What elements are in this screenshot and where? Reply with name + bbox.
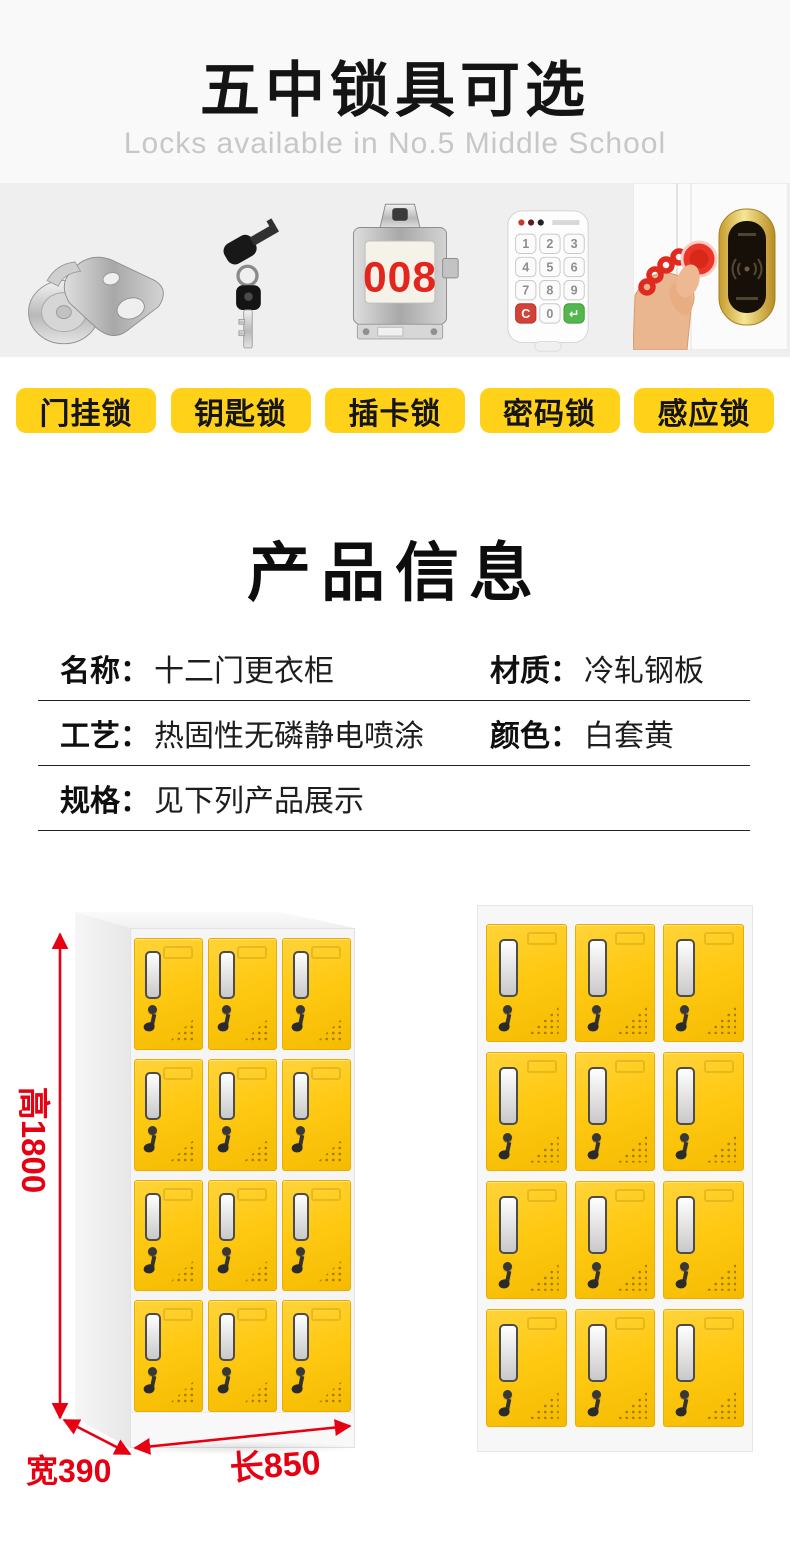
vent-holes bbox=[317, 1259, 343, 1283]
locker-door bbox=[486, 1052, 567, 1170]
name-card-slot bbox=[588, 1067, 607, 1125]
door-handle-emboss bbox=[163, 1067, 193, 1080]
keyhole-icon bbox=[680, 1390, 689, 1399]
name-card-slot bbox=[499, 939, 518, 997]
keyhole-icon bbox=[296, 1126, 305, 1135]
vent-holes bbox=[169, 1380, 195, 1404]
spec-value: 见下列产品展示 bbox=[154, 776, 364, 820]
hanging-keys-icon bbox=[505, 1399, 511, 1412]
name-card-slot bbox=[676, 1067, 695, 1125]
locker-door bbox=[208, 938, 277, 1050]
door-handle-emboss bbox=[527, 932, 557, 945]
spec-value: 十二门更衣柜 bbox=[154, 646, 334, 690]
locker-door bbox=[663, 1181, 744, 1299]
vent-holes bbox=[706, 1135, 736, 1163]
name-card-slot bbox=[588, 1196, 607, 1254]
keyhole-icon bbox=[592, 1262, 601, 1271]
hanging-keys-icon bbox=[593, 1270, 599, 1283]
vent-holes bbox=[317, 1380, 343, 1404]
vent-holes bbox=[706, 1006, 736, 1034]
name-card-slot bbox=[676, 1324, 695, 1382]
spec-table: 名称： 十二门更衣柜 材质： 冷轧钢板 工艺： 热固性无磷静电喷涂 颜色： 白套… bbox=[38, 636, 750, 831]
cam-lock-photo bbox=[12, 223, 177, 353]
svg-text:↵: ↵ bbox=[569, 307, 580, 321]
locker-door bbox=[575, 1181, 656, 1299]
locker-front-face bbox=[130, 928, 355, 1448]
locker-door bbox=[134, 1300, 203, 1412]
hanging-keys-icon bbox=[150, 1376, 156, 1389]
locker-door bbox=[282, 938, 351, 1050]
name-card-slot bbox=[588, 1324, 607, 1382]
hanging-keys-icon bbox=[224, 1014, 230, 1027]
door-grid bbox=[134, 938, 351, 1412]
locker-door bbox=[663, 924, 744, 1042]
vent-holes bbox=[529, 1263, 559, 1291]
lock-type-button-card[interactable]: 插卡锁 bbox=[325, 388, 465, 433]
name-card-slot bbox=[293, 1313, 309, 1361]
door-handle-emboss bbox=[237, 1308, 267, 1321]
vent-holes bbox=[617, 1006, 647, 1034]
vent-holes bbox=[617, 1391, 647, 1419]
door-handle-emboss bbox=[704, 932, 734, 945]
spec-material: 材质： 冷轧钢板 bbox=[490, 646, 750, 690]
svg-text:7: 7 bbox=[522, 284, 529, 298]
door-handle-emboss bbox=[527, 1317, 557, 1330]
keyhole-icon bbox=[296, 1247, 305, 1256]
locker-door bbox=[575, 924, 656, 1042]
vent-holes bbox=[617, 1263, 647, 1291]
keyhole-icon bbox=[592, 1005, 601, 1014]
spec-row-2: 工艺： 热固性无磷静电喷涂 颜色： 白套黄 bbox=[38, 701, 750, 766]
svg-text:4: 4 bbox=[522, 260, 529, 274]
rfid-lock-photo bbox=[633, 183, 788, 350]
locker-door bbox=[282, 1180, 351, 1292]
page-root: { "colors": { "accent_yellow": "#ffd118"… bbox=[0, 0, 790, 1567]
vent-holes bbox=[243, 1139, 269, 1163]
name-card-slot bbox=[499, 1196, 518, 1254]
hanging-keys-icon bbox=[150, 1255, 156, 1268]
door-grid bbox=[486, 924, 744, 1427]
vent-holes bbox=[243, 1018, 269, 1042]
card-number-text: 008 bbox=[363, 253, 437, 301]
keyhole-icon bbox=[148, 1126, 157, 1135]
svg-text:3: 3 bbox=[571, 237, 578, 251]
door-handle-emboss bbox=[311, 1308, 341, 1321]
vent-holes bbox=[706, 1263, 736, 1291]
hanging-keys-icon bbox=[150, 1014, 156, 1027]
hanging-keys-icon bbox=[224, 1255, 230, 1268]
keypad-lock-icon: 1 2 3 4 5 6 7 8 9 0 C ↵ bbox=[502, 208, 594, 355]
name-card-slot bbox=[499, 1067, 518, 1125]
locker-door bbox=[282, 1059, 351, 1171]
vent-holes bbox=[169, 1018, 195, 1042]
door-handle-emboss bbox=[163, 1308, 193, 1321]
keyhole-icon bbox=[222, 1247, 231, 1256]
door-handle-emboss bbox=[237, 946, 267, 959]
spec-value: 热固性无磷静电喷涂 bbox=[154, 711, 424, 755]
name-card-slot bbox=[219, 1313, 235, 1361]
hanging-keys-icon bbox=[298, 1255, 304, 1268]
door-handle-emboss bbox=[527, 1189, 557, 1202]
hanging-keys-icon bbox=[150, 1135, 156, 1148]
spec-color: 颜色： 白套黄 bbox=[490, 711, 750, 755]
name-card-slot bbox=[588, 939, 607, 997]
locker-door bbox=[663, 1309, 744, 1427]
door-handle-emboss bbox=[163, 1188, 193, 1201]
keyhole-icon bbox=[222, 1126, 231, 1135]
name-card-slot bbox=[676, 939, 695, 997]
svg-text:2: 2 bbox=[546, 237, 553, 251]
page-title: 五中锁具可选 bbox=[0, 42, 790, 129]
name-card-slot bbox=[145, 1072, 161, 1120]
locker-door bbox=[208, 1180, 277, 1292]
rfid-lock-icon bbox=[633, 183, 788, 350]
width-label: 宽390 bbox=[26, 1446, 111, 1492]
locker-door bbox=[663, 1052, 744, 1170]
lock-type-button-door-hanging[interactable]: 门挂锁 bbox=[16, 388, 156, 433]
page-subtitle: Locks available in No.5 Middle School bbox=[0, 127, 790, 161]
locker-door bbox=[134, 938, 203, 1050]
keyhole-icon bbox=[680, 1262, 689, 1271]
hanging-keys-icon bbox=[505, 1142, 511, 1155]
vent-holes bbox=[317, 1018, 343, 1042]
spec-value: 冷轧钢板 bbox=[584, 646, 704, 690]
keypad-lock-photo: 1 2 3 4 5 6 7 8 9 0 C ↵ bbox=[502, 208, 594, 355]
lock-photos-strip: 008 1 2 3 4 bbox=[0, 183, 790, 357]
door-handle-emboss bbox=[163, 946, 193, 959]
spec-craft: 工艺： 热固性无磷静电喷涂 bbox=[38, 711, 490, 755]
svg-text:8: 8 bbox=[546, 284, 553, 298]
locker-door bbox=[208, 1059, 277, 1171]
vent-holes bbox=[243, 1380, 269, 1404]
vent-holes bbox=[529, 1135, 559, 1163]
vent-holes bbox=[243, 1259, 269, 1283]
name-card-slot bbox=[499, 1324, 518, 1382]
svg-text:6: 6 bbox=[571, 260, 578, 274]
hanging-keys-icon bbox=[593, 1142, 599, 1155]
name-card-slot bbox=[676, 1196, 695, 1254]
vent-holes bbox=[706, 1391, 736, 1419]
vent-holes bbox=[529, 1006, 559, 1034]
lock-type-button-key[interactable]: 钥匙锁 bbox=[171, 388, 311, 433]
keyhole-icon bbox=[296, 1005, 305, 1014]
keyhole-icon bbox=[148, 1247, 157, 1256]
hanging-keys-icon bbox=[682, 1014, 688, 1027]
product-info-title: 产品信息 bbox=[0, 522, 790, 614]
locker-door bbox=[208, 1300, 277, 1412]
svg-text:9: 9 bbox=[571, 284, 578, 298]
spec-value: 白套黄 bbox=[584, 711, 674, 755]
vent-holes bbox=[169, 1259, 195, 1283]
door-handle-emboss bbox=[704, 1317, 734, 1330]
keyhole-icon bbox=[503, 1005, 512, 1014]
key-lock-photo bbox=[200, 208, 295, 353]
keyhole-icon bbox=[503, 1390, 512, 1399]
hanging-keys-icon bbox=[593, 1014, 599, 1027]
door-handle-emboss bbox=[704, 1189, 734, 1202]
lock-type-buttons: 门挂锁 钥匙锁 插卡锁 密码锁 感应锁 bbox=[0, 388, 790, 433]
door-handle-emboss bbox=[527, 1060, 557, 1073]
hanging-keys-icon bbox=[224, 1376, 230, 1389]
hanging-keys-icon bbox=[505, 1270, 511, 1283]
door-handle-emboss bbox=[311, 1067, 341, 1080]
hanging-keys-icon bbox=[298, 1014, 304, 1027]
locker-door bbox=[575, 1309, 656, 1427]
keyhole-icon bbox=[592, 1390, 601, 1399]
hanging-keys-icon bbox=[682, 1142, 688, 1155]
spec-label: 规格： bbox=[60, 776, 150, 820]
door-handle-emboss bbox=[615, 1060, 645, 1073]
header-section: 五中锁具可选 Locks available in No.5 Middle Sc… bbox=[0, 0, 790, 183]
spec-name: 名称： 十二门更衣柜 bbox=[38, 646, 490, 690]
spec-label: 材质： bbox=[490, 646, 580, 690]
svg-text:5: 5 bbox=[546, 260, 553, 274]
hanging-keys-icon bbox=[224, 1135, 230, 1148]
hanging-keys-icon bbox=[298, 1135, 304, 1148]
locker-door bbox=[486, 1181, 567, 1299]
height-dimension-arrow bbox=[49, 928, 71, 1424]
spec-label: 工艺： bbox=[60, 711, 150, 755]
keyhole-icon bbox=[222, 1005, 231, 1014]
name-card-slot bbox=[145, 1193, 161, 1241]
svg-text:0: 0 bbox=[546, 307, 553, 321]
hanging-keys-icon bbox=[505, 1014, 511, 1027]
length-label: 长850 bbox=[208, 1434, 341, 1492]
svg-text:C: C bbox=[521, 307, 530, 321]
vent-holes bbox=[617, 1135, 647, 1163]
card-lock-icon: 008 bbox=[337, 200, 463, 348]
hanging-keys-icon bbox=[682, 1399, 688, 1412]
key-lock-icon bbox=[200, 208, 295, 353]
locker-door bbox=[134, 1180, 203, 1292]
lock-type-button-password[interactable]: 密码锁 bbox=[480, 388, 620, 433]
name-card-slot bbox=[145, 1313, 161, 1361]
door-handle-emboss bbox=[615, 1317, 645, 1330]
name-card-slot bbox=[293, 1193, 309, 1241]
svg-text:1: 1 bbox=[522, 237, 529, 251]
vent-holes bbox=[169, 1139, 195, 1163]
spec-row-3: 规格： 见下列产品展示 bbox=[38, 766, 750, 831]
card-lock-photo: 008 bbox=[337, 200, 463, 348]
lock-type-button-induction[interactable]: 感应锁 bbox=[634, 388, 774, 433]
locker-3d-view bbox=[75, 912, 355, 1448]
spec-size: 规格： 见下列产品展示 bbox=[38, 776, 490, 820]
locker-door bbox=[134, 1059, 203, 1171]
keyhole-icon bbox=[680, 1005, 689, 1014]
keyhole-icon bbox=[148, 1005, 157, 1014]
door-handle-emboss bbox=[237, 1067, 267, 1080]
locker-side-face bbox=[75, 912, 130, 1448]
name-card-slot bbox=[219, 1193, 235, 1241]
name-card-slot bbox=[219, 1072, 235, 1120]
name-card-slot bbox=[219, 951, 235, 999]
door-handle-emboss bbox=[615, 1189, 645, 1202]
spec-row-1: 名称： 十二门更衣柜 材质： 冷轧钢板 bbox=[38, 636, 750, 701]
hanging-keys-icon bbox=[593, 1399, 599, 1412]
keyhole-icon bbox=[503, 1262, 512, 1271]
locker-door bbox=[575, 1052, 656, 1170]
door-handle-emboss bbox=[237, 1188, 267, 1201]
door-handle-emboss bbox=[311, 1188, 341, 1201]
locker-door bbox=[486, 1309, 567, 1427]
door-handle-emboss bbox=[615, 932, 645, 945]
door-handle-emboss bbox=[704, 1060, 734, 1073]
vent-holes bbox=[529, 1391, 559, 1419]
door-handle-emboss bbox=[311, 946, 341, 959]
locker-front-view bbox=[477, 905, 753, 1452]
spec-label: 颜色： bbox=[490, 711, 580, 755]
hanging-keys-icon bbox=[682, 1270, 688, 1283]
name-card-slot bbox=[145, 951, 161, 999]
spec-label: 名称： bbox=[60, 646, 150, 690]
vent-holes bbox=[317, 1139, 343, 1163]
locker-door bbox=[486, 924, 567, 1042]
cam-lock-icon bbox=[12, 223, 177, 353]
height-label: 高1800 bbox=[15, 1077, 51, 1203]
locker-door bbox=[282, 1300, 351, 1412]
name-card-slot bbox=[293, 951, 309, 999]
name-card-slot bbox=[293, 1072, 309, 1120]
hanging-keys-icon bbox=[298, 1376, 304, 1389]
